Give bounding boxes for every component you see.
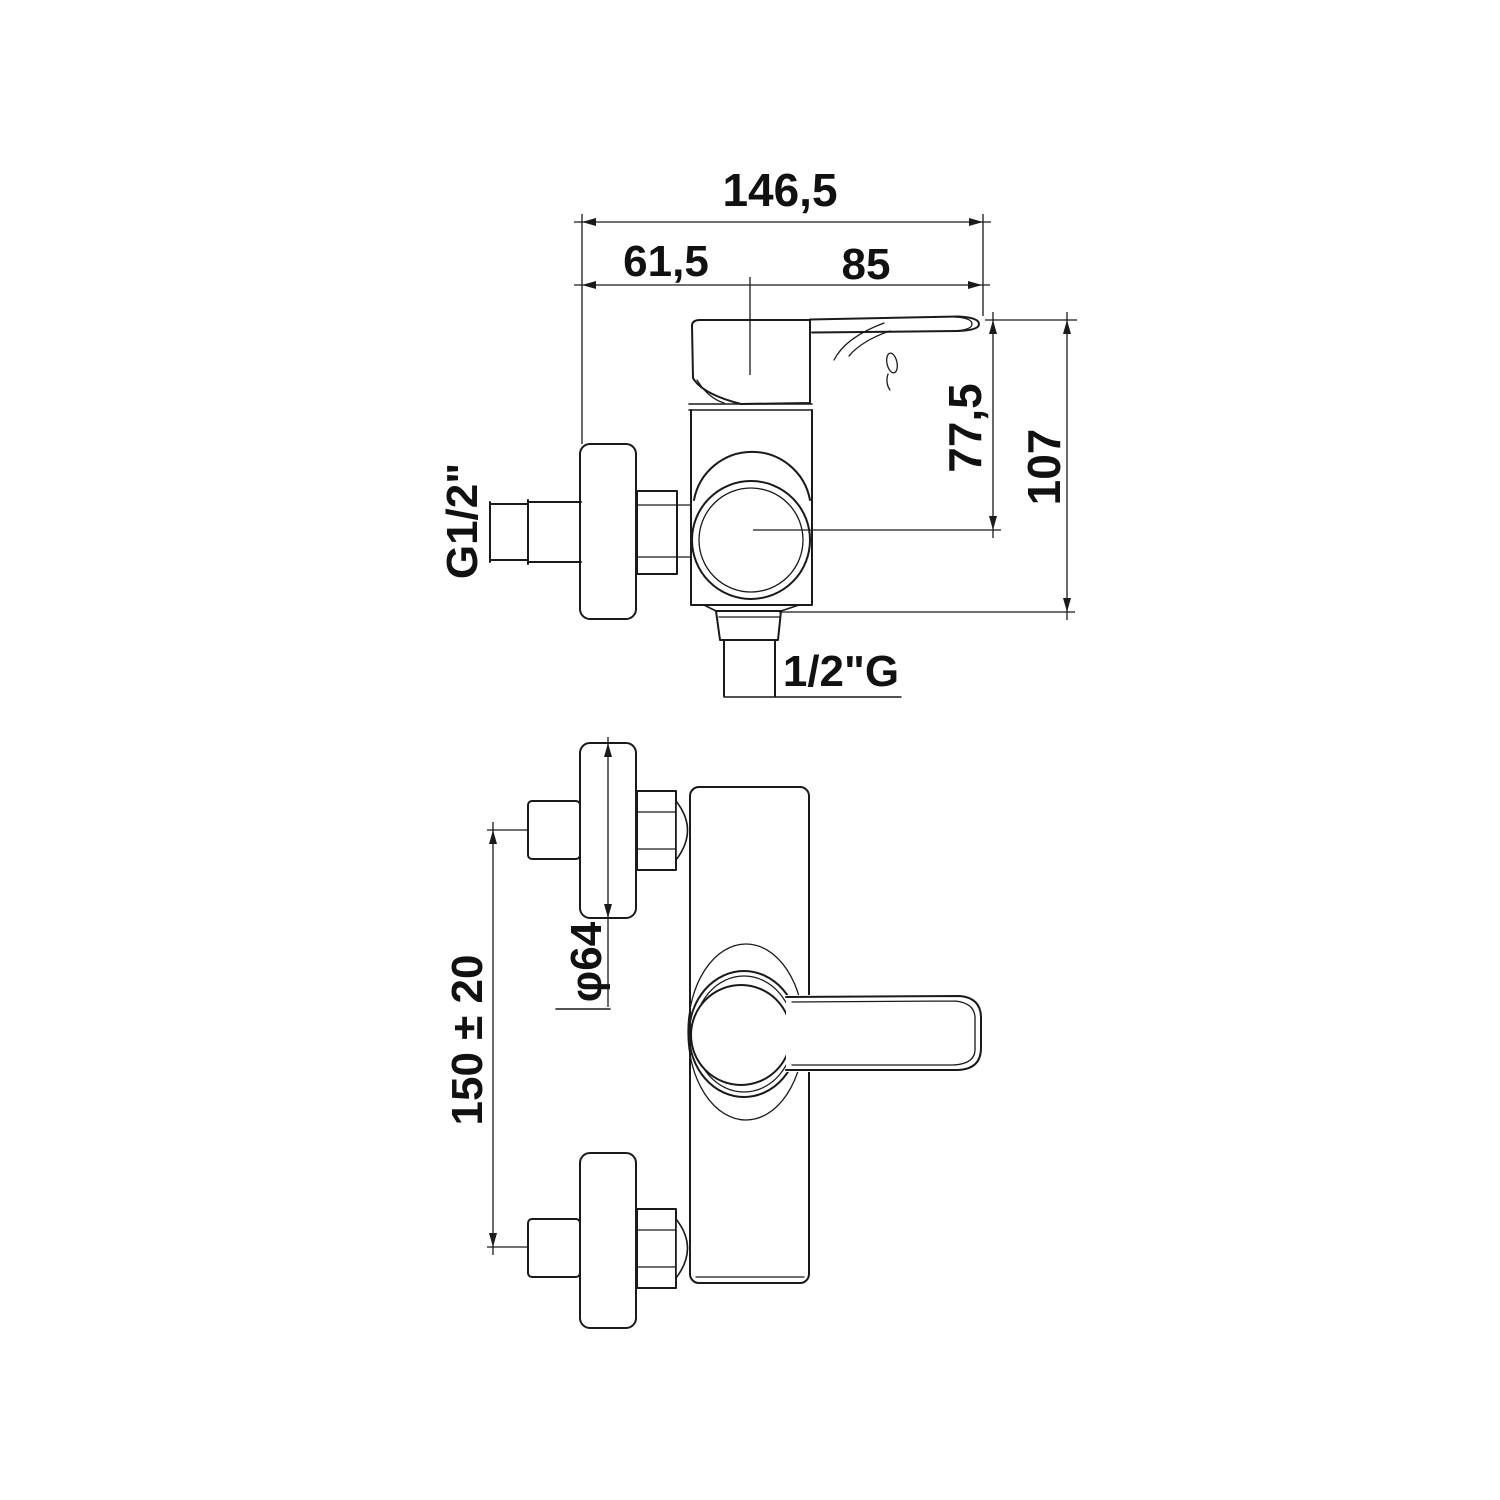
- hex-nut-top: [637, 791, 676, 870]
- hex-nut-facets-top: [637, 812, 676, 849]
- arrowhead: [489, 1233, 497, 1247]
- wall-connection-bottom: [528, 1153, 688, 1328]
- valve-block-side: [691, 410, 812, 605]
- dim-text-overall-height: 107: [1018, 429, 1070, 506]
- body-inner-arc: [697, 380, 724, 403]
- hex-nut-facets-side: [637, 505, 677, 557]
- handle-front: [688, 944, 983, 1120]
- wall-flange-side: [580, 444, 636, 619]
- nut-body-bulge-top: [676, 801, 688, 860]
- dim-text-inlet-spacing: 150 ± 20: [443, 955, 492, 1126]
- handle-lever-side: [810, 317, 979, 333]
- outlet-collar: [716, 611, 781, 640]
- inlet-stub-bottom: [528, 1219, 580, 1277]
- inlet-stub-top: [528, 801, 580, 859]
- dim-text-flange-diameter: φ64: [562, 921, 611, 1002]
- dim-text-overall-width: 146,5: [722, 164, 837, 216]
- front-view: φ64 150 ± 20: [443, 737, 983, 1328]
- arrowhead: [582, 218, 596, 226]
- outlet-pipe: [724, 640, 775, 696]
- handle-tip-inner-line: [954, 317, 972, 331]
- technical-drawing-page: 146,5 61,5 85 77,5 107 G1/2" 1/2"G: [0, 0, 1500, 1500]
- arrowhead: [1063, 598, 1071, 612]
- dim-text-inlet-offset: 61,5: [623, 237, 709, 286]
- cartridge-cap-outer: [692, 481, 810, 599]
- arrowhead: [604, 904, 612, 918]
- joint-band: [689, 404, 812, 410]
- arrowhead: [489, 830, 497, 844]
- label-inlet-thread: G1/2": [438, 463, 487, 579]
- hex-nut-bottom: [637, 1209, 676, 1288]
- arrowhead: [989, 320, 997, 334]
- nut-body-bulge-bottom: [676, 1219, 688, 1278]
- cartridge-back-arc: [694, 452, 810, 500]
- mixer-body-upper: [692, 320, 810, 404]
- nut-body-connectors: [677, 505, 691, 557]
- inlet-stub-side: [490, 500, 581, 564]
- cartridge-cap-inner: [699, 488, 803, 592]
- handle-screw-tail: [887, 374, 890, 390]
- arrowhead: [582, 281, 596, 289]
- wall-flange-bottom: [580, 1153, 636, 1328]
- handle-swoosh-outer: [834, 323, 884, 360]
- side-view: 146,5 61,5 85 77,5 107 G1/2" 1/2"G: [438, 164, 1077, 697]
- arrowhead: [989, 516, 997, 530]
- arrowhead: [969, 218, 983, 226]
- dimensions-side: 146,5 61,5 85 77,5 107 G1/2" 1/2"G: [438, 164, 1077, 696]
- arrowhead: [604, 743, 612, 757]
- handle-screw-icon: [885, 352, 899, 374]
- dim-text-height-to-center: 77,5: [939, 383, 991, 473]
- handle-knob-front: [691, 985, 791, 1085]
- hex-nut-facets-bottom: [637, 1230, 676, 1267]
- arrowhead: [968, 281, 982, 289]
- handle-lever-fill: [786, 995, 983, 1072]
- hex-nut-side: [637, 491, 677, 574]
- dim-text-handle-length: 85: [842, 240, 891, 289]
- handle-swoosh-inner: [849, 331, 890, 356]
- label-outlet-thread: 1/2"G: [783, 647, 899, 696]
- drawing-svg: 146,5 61,5 85 77,5 107 G1/2" 1/2"G: [0, 0, 1500, 1500]
- arrowhead: [1063, 320, 1071, 334]
